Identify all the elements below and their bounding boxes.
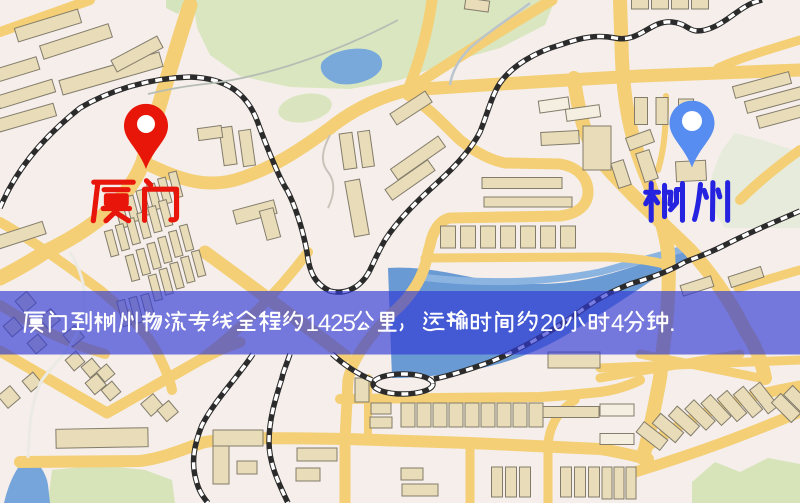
svg-text:1425: 1425	[306, 310, 356, 337]
svg-text:20: 20	[540, 310, 565, 337]
svg-text:4: 4	[611, 310, 624, 337]
svg-text:.: .	[669, 310, 675, 337]
